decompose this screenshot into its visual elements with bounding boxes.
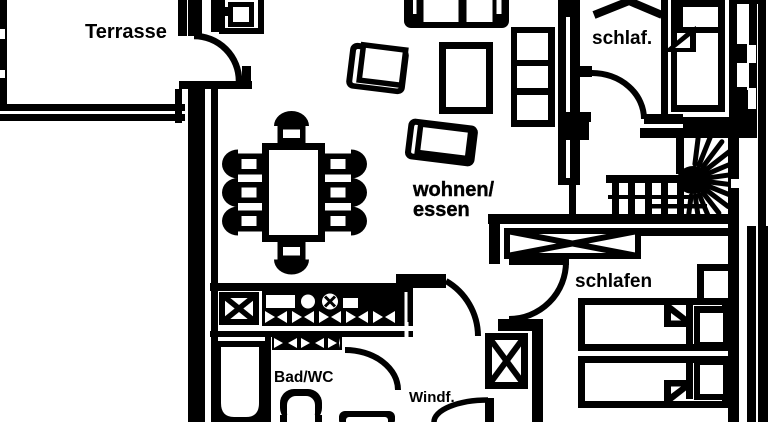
svg-text:Windf.: Windf.: [409, 389, 455, 406]
svg-text:essen: essen: [413, 199, 470, 221]
svg-text:wohnen/: wohnen/: [412, 179, 495, 201]
svg-text:schlafen: schlafen: [575, 271, 652, 292]
svg-text:Terrasse: Terrasse: [85, 21, 167, 43]
svg-text:Bad/WC: Bad/WC: [274, 369, 333, 386]
svg-text:schlaf.: schlaf.: [592, 28, 652, 49]
